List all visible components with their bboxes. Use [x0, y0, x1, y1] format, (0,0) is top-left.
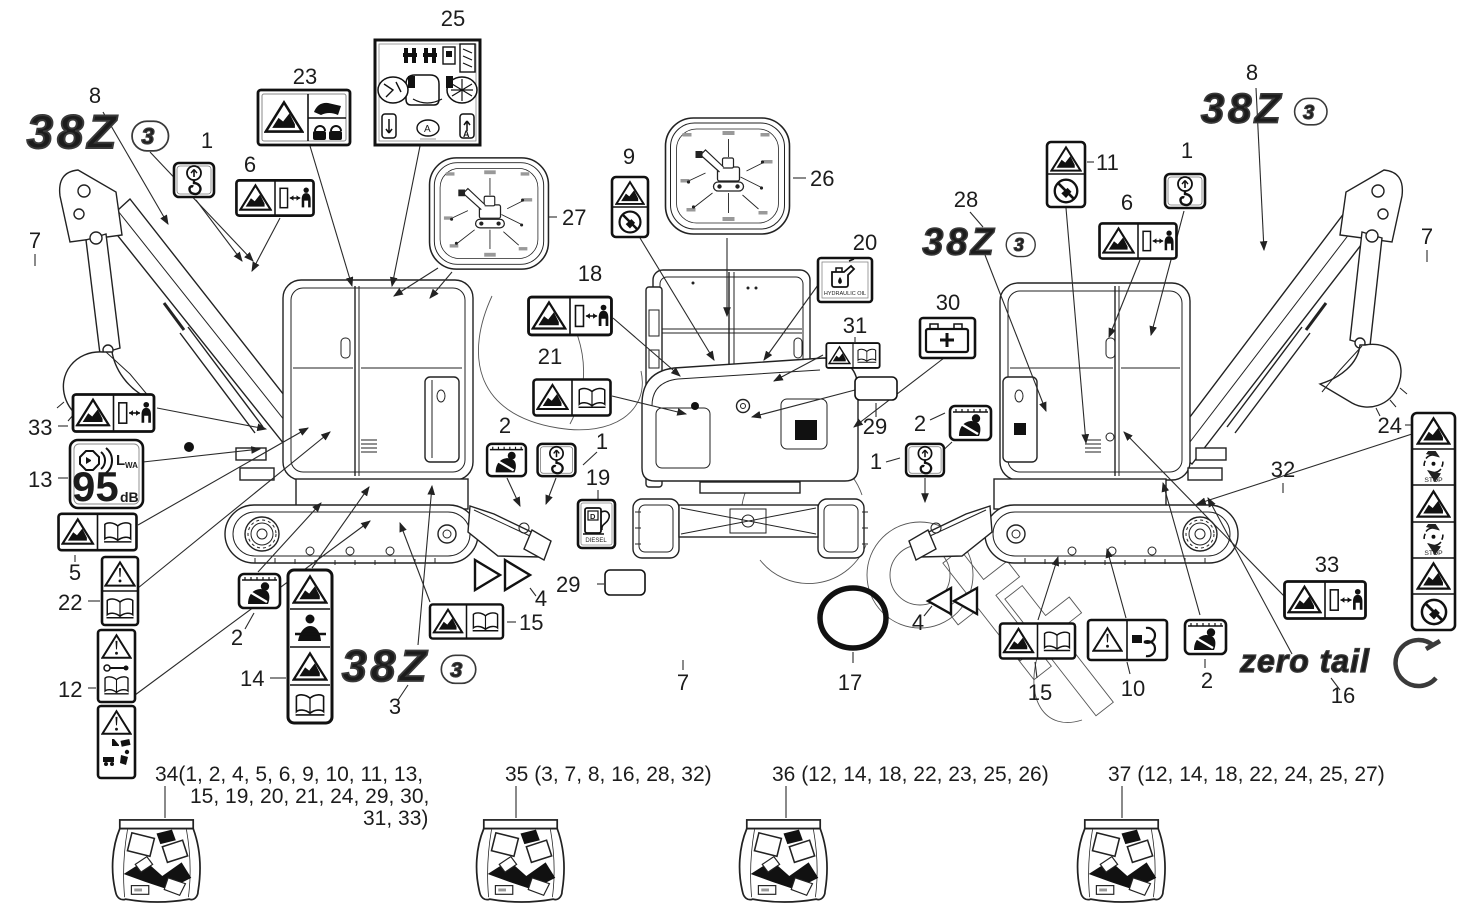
decal-16-zero-tail: zero tail: [1239, 640, 1440, 686]
decal-13-noise-level: L WA 95 dB: [70, 440, 143, 510]
decal-location-diagram: STOP 38Z 3: [0, 0, 1460, 914]
bag-36-label: 36 (12, 14, 18, 22, 23, 25, 26): [772, 763, 1049, 786]
decal-8-logo-left: [27, 106, 169, 159]
callout-1: 1: [201, 128, 213, 153]
decal-10-warn-hoses: [1088, 620, 1167, 660]
callout-26: 26: [810, 166, 834, 191]
bag-34-label-line1: 34(1, 2, 4, 5, 6, 9, 10, 11, 13,: [155, 763, 423, 786]
callout-22: 22: [58, 590, 82, 615]
lwa-wa: WA: [125, 461, 138, 470]
callout-7: 7: [29, 228, 41, 253]
decal-26-control-pattern: [666, 118, 790, 234]
parts-diagram-page: STOP 38Z 3: [0, 0, 1460, 914]
decal-31-warn-read-manual: [826, 343, 879, 368]
callout-2e: 2: [1201, 668, 1213, 693]
callout-28: 28: [954, 187, 978, 212]
diesel-d-mark: D: [590, 512, 596, 521]
decal-18-crush-distance: [529, 297, 612, 335]
callout-7b: 7: [1421, 224, 1433, 249]
callout-11: 11: [1096, 150, 1119, 175]
callout-20: 20: [853, 230, 877, 255]
callout-13: 13: [28, 467, 52, 492]
decal-14-warn-seated-stack: [288, 570, 332, 723]
callout-3: 3: [389, 694, 401, 719]
callout-4: 4: [535, 586, 547, 611]
decal-30-battery: [920, 318, 975, 358]
decal-19-diesel-fuel: D DIESEL: [578, 500, 615, 548]
bag-37-icon: [1078, 820, 1165, 902]
bag-35-label: 35 (3, 7, 8, 16, 28, 32): [505, 763, 712, 786]
callout-1d: 1: [870, 449, 882, 474]
callout-5: 5: [69, 560, 81, 585]
hydraulic-oil-label: HYDRAULIC OIL: [824, 291, 866, 297]
callout-4b: 4: [912, 610, 924, 635]
decal-20-hydraulic-oil: HYDRAULIC OIL: [818, 258, 872, 302]
callout-2: 2: [231, 625, 243, 650]
decal-5-warn-read-manual: [59, 514, 137, 550]
callout-24: 24: [1378, 413, 1402, 438]
callout-30: 30: [936, 290, 960, 315]
bag-35-icon: [477, 820, 564, 902]
callout-18: 18: [578, 261, 602, 286]
bag-34-label-line3: 31, 33): [363, 807, 428, 830]
callout-29b: 29: [556, 572, 580, 597]
callout-14: 14: [240, 666, 264, 691]
bag-34-icon: [113, 820, 200, 902]
callout-15b: 15: [1028, 680, 1052, 705]
decal-23-noise-hazard: [258, 90, 350, 145]
decal-17-ring: [820, 588, 886, 648]
decal-9-warn-prohibit: [612, 177, 648, 237]
callout-21: 21: [538, 344, 562, 369]
callout-8b: 8: [1246, 60, 1258, 85]
callout-2c: 2: [499, 413, 511, 438]
callout-33: 33: [28, 415, 52, 440]
callout-7c: 7: [677, 670, 689, 695]
callout-1b: 1: [1181, 138, 1193, 163]
callout-25: 25: [441, 6, 465, 31]
decal-22-warn-manual-vertical: [102, 557, 138, 625]
callout-16: 16: [1331, 683, 1355, 708]
decal-24-rotating-parts-strip: [1412, 413, 1455, 630]
db-unit: dB: [120, 489, 139, 505]
callout-8: 8: [89, 83, 101, 108]
callout-6: 6: [244, 152, 256, 177]
decal-28-logo-right: [922, 220, 1035, 262]
bag-34-label-line2: 15, 19, 20, 21, 24, 29, 30,: [190, 785, 429, 808]
decal-12-warn-stack: [98, 630, 135, 778]
callout-19: 19: [586, 465, 610, 490]
callout-15: 15: [519, 610, 543, 635]
bag-37-label: 37 (12, 14, 18, 22, 24, 25, 27): [1108, 763, 1385, 786]
decal-4-travel-arrows: [475, 560, 977, 614]
decal-bags: 34(1, 2, 4, 5, 6, 9, 10, 11, 13, 15, 19,…: [113, 763, 1385, 902]
control-a-mark: A: [463, 129, 470, 139]
decal-3-logo-bottom: [342, 642, 476, 691]
decal-25-operator-controls: A A: [375, 40, 480, 145]
callout-10: 10: [1121, 676, 1145, 701]
decal-21-warn-read-manual: [534, 380, 611, 416]
bag-36-icon: [740, 820, 827, 902]
callout-33b: 33: [1315, 552, 1339, 577]
decal-27-control-pattern: [430, 158, 549, 269]
callout-23: 23: [293, 64, 317, 89]
callout-9: 9: [623, 144, 635, 169]
callout-29: 29: [863, 414, 887, 439]
zero-tail-logo-text: zero tail: [1239, 643, 1370, 679]
oval-a-mark: A: [424, 124, 431, 135]
callout-17: 17: [838, 670, 862, 695]
db-value: 95: [72, 463, 119, 510]
diesel-label: DIESEL: [585, 538, 607, 544]
callout-1c: 1: [596, 429, 608, 454]
callout-2d: 2: [914, 411, 926, 436]
callout-32: 32: [1271, 457, 1295, 482]
callout-31: 31: [843, 313, 867, 338]
callout-6b: 6: [1121, 190, 1133, 215]
callout-12: 12: [58, 677, 82, 702]
callout-27: 27: [562, 205, 586, 230]
decal-11-warn-prohibit: [1047, 142, 1085, 207]
excavator-rear-view: [633, 270, 868, 558]
decal-8-logo-topright: [1201, 84, 1327, 131]
